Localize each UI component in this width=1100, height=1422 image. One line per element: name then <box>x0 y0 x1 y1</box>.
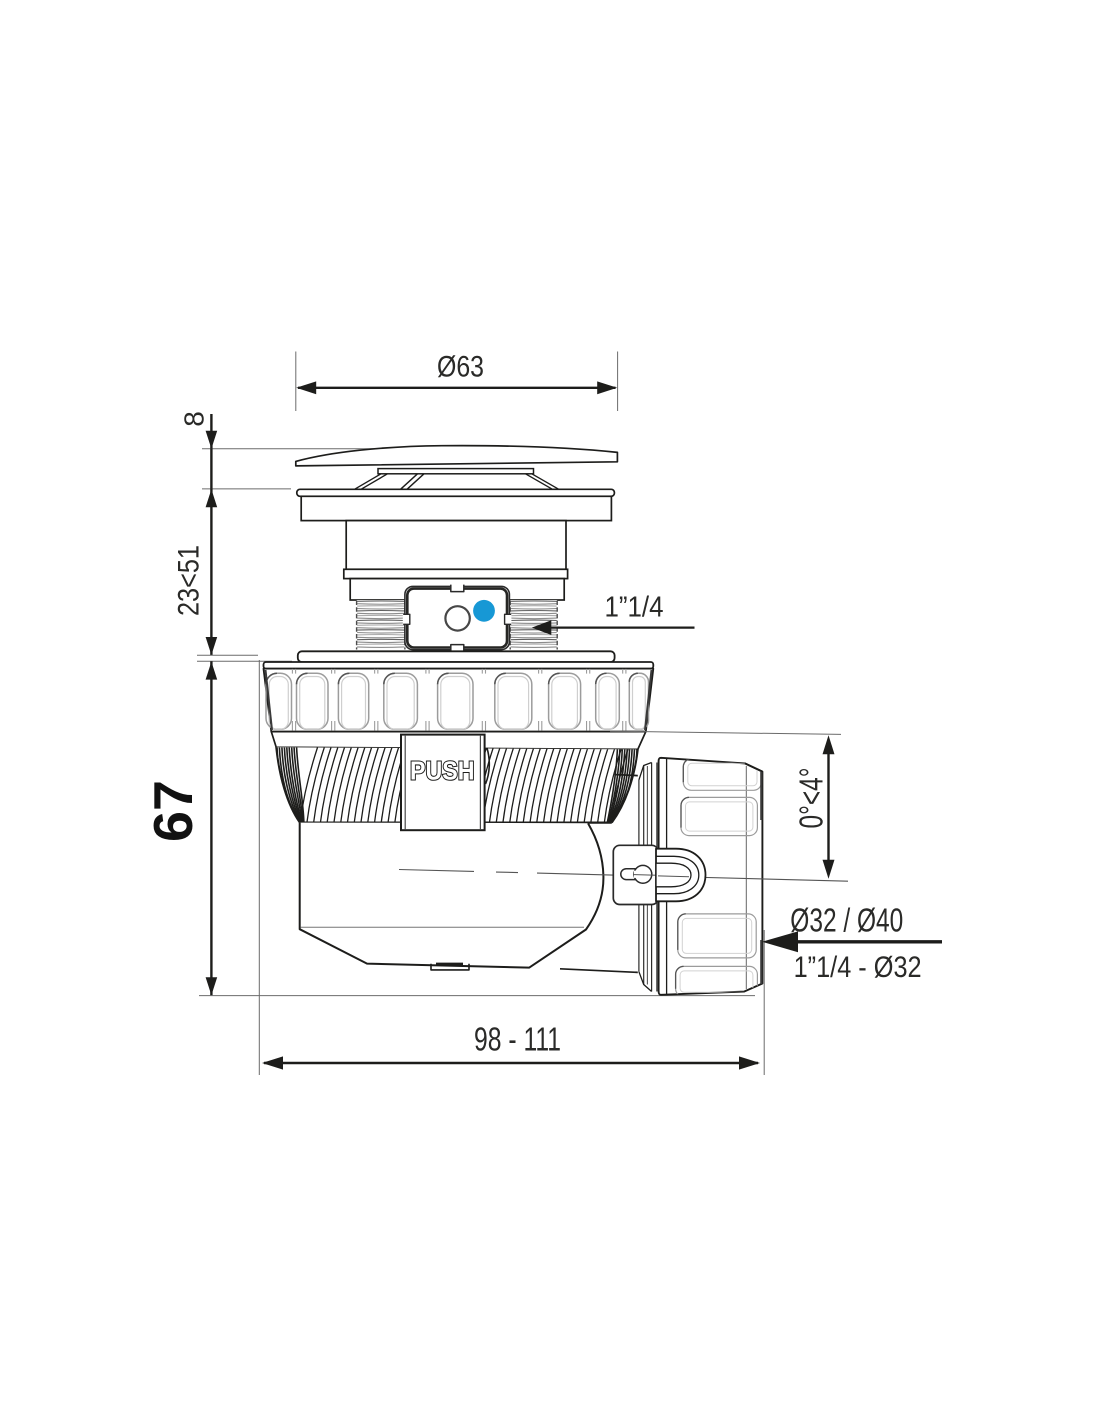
svg-text:67: 67 <box>142 780 204 842</box>
svg-text:23<51: 23<51 <box>173 545 206 616</box>
svg-text:Ø32 / Ø40: Ø32 / Ø40 <box>790 902 903 939</box>
svg-text:1”1/4: 1”1/4 <box>605 591 664 623</box>
svg-text:Ø63: Ø63 <box>437 351 484 384</box>
svg-text:PUSH: PUSH <box>410 758 475 786</box>
svg-text:0°<4°: 0°<4° <box>793 768 830 829</box>
svg-text:8: 8 <box>179 411 210 427</box>
svg-text:98 - 111: 98 - 111 <box>474 1021 561 1058</box>
svg-text:1”1/4 - Ø32: 1”1/4 - Ø32 <box>794 951 922 984</box>
